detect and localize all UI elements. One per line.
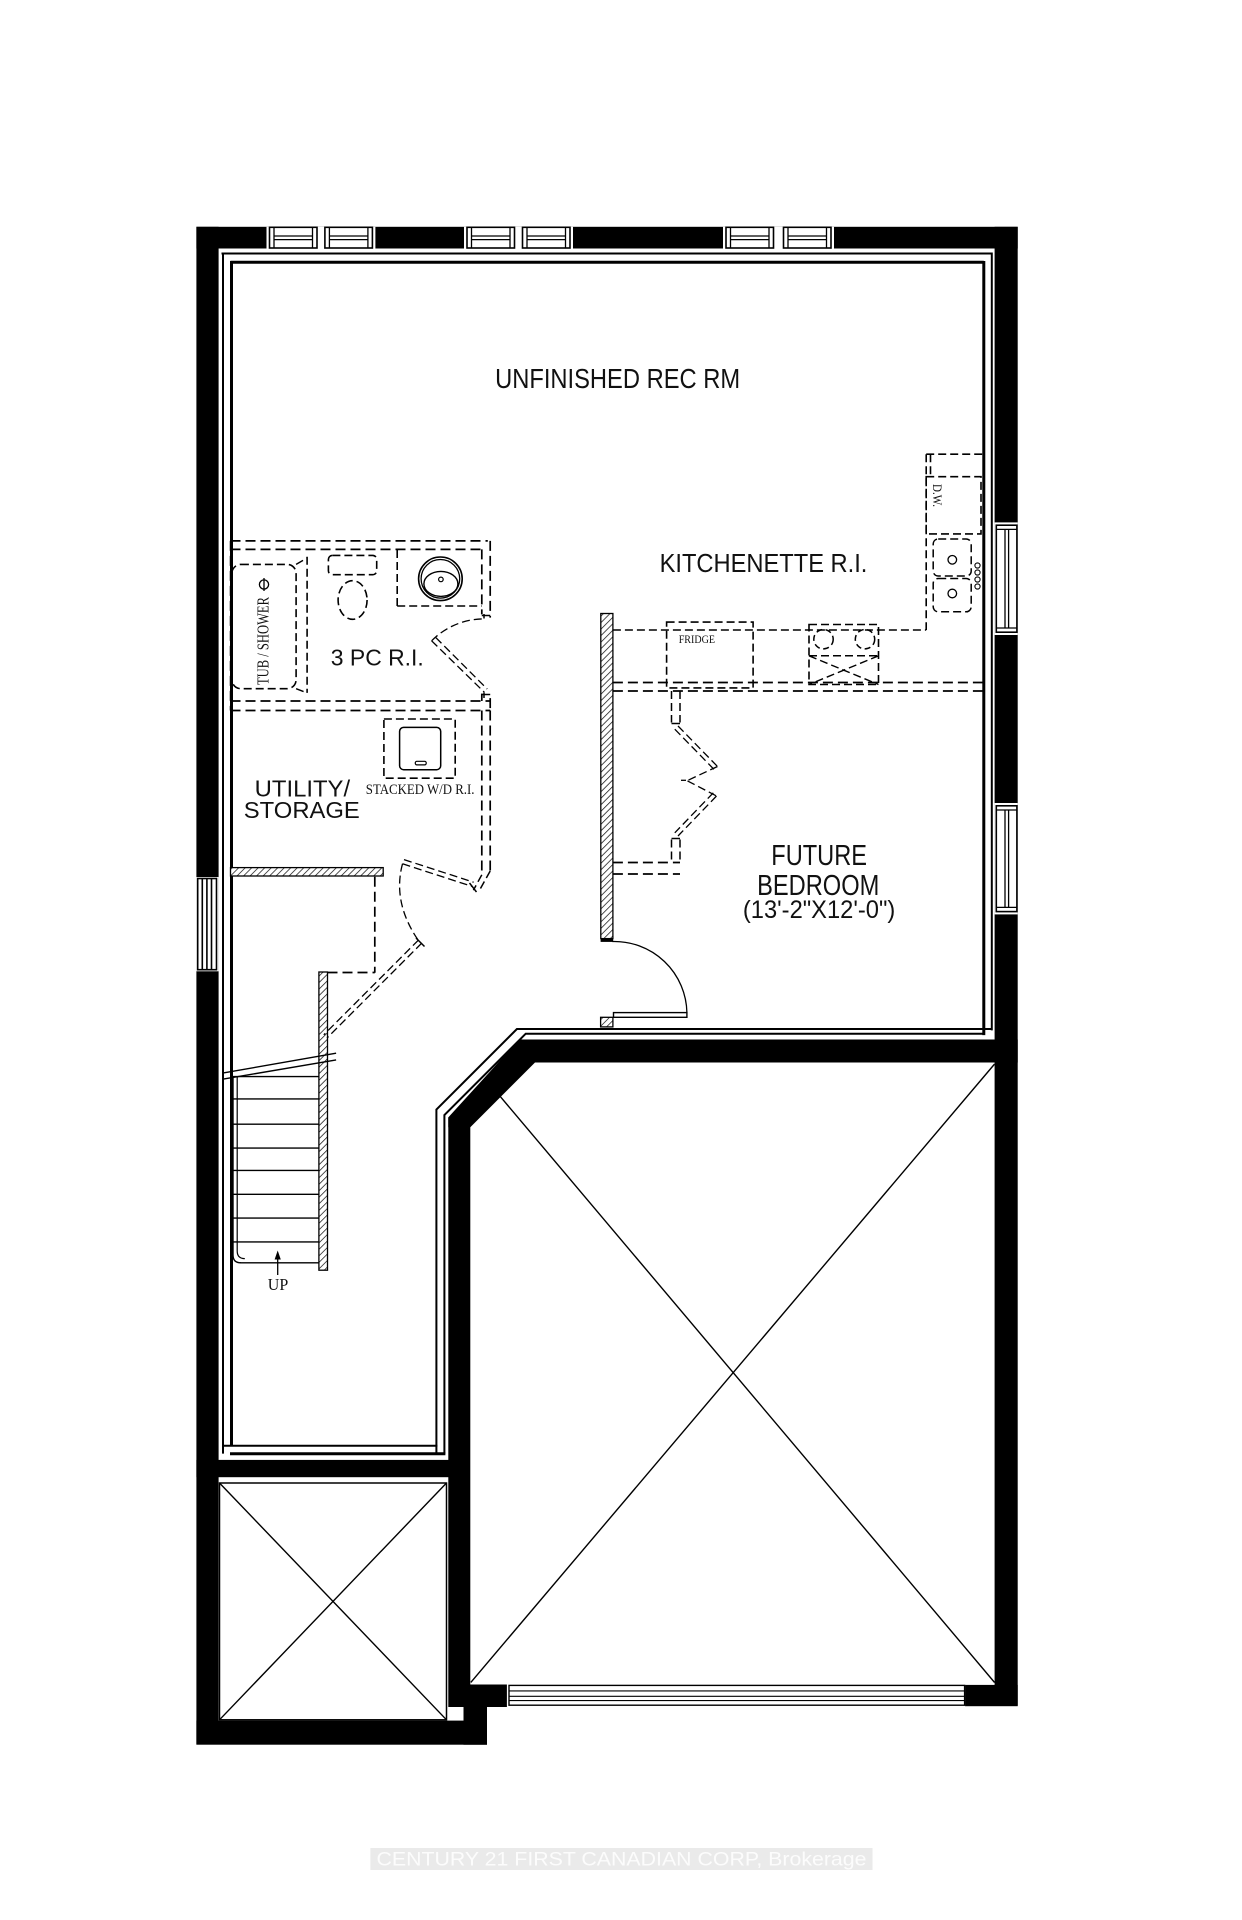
svg-text:KITCHENETTE R.I.: KITCHENETTE R.I. xyxy=(660,548,868,578)
svg-text:STACKED W/D R.I.: STACKED W/D R.I. xyxy=(366,782,475,798)
svg-text:STORAGE: STORAGE xyxy=(244,797,360,823)
svg-text:UP: UP xyxy=(268,1275,288,1294)
svg-text:UNFINISHED REC RM: UNFINISHED REC RM xyxy=(495,363,740,394)
svg-text:D.W.: D.W. xyxy=(930,484,944,507)
svg-text:TUB / SHOWER: TUB / SHOWER xyxy=(254,597,273,685)
svg-text:FRIDGE: FRIDGE xyxy=(679,634,715,646)
svg-text:CENTURY 21 FIRST CANADIAN CORP: CENTURY 21 FIRST CANADIAN CORP, Brokerag… xyxy=(377,1849,867,1871)
svg-text:3 PC R.I.: 3 PC R.I. xyxy=(331,644,424,670)
svg-text:(13'-2"X12'-0"): (13'-2"X12'-0") xyxy=(743,896,895,924)
svg-text:FUTURE: FUTURE xyxy=(771,840,867,872)
